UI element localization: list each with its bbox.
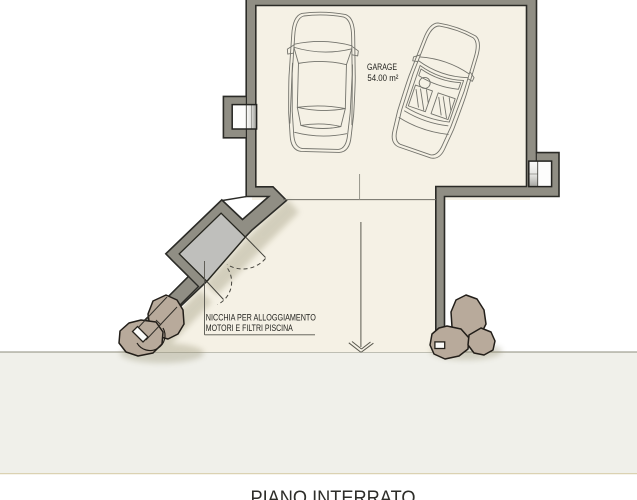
svg-text:NICCHIA PER ALLOGGIAMENTO: NICCHIA PER ALLOGGIAMENTO bbox=[206, 311, 316, 322]
svg-text:GARAGE: GARAGE bbox=[367, 61, 397, 72]
svg-text:MOTORI E FILTRI PISCINA: MOTORI E FILTRI PISCINA bbox=[206, 322, 294, 333]
svg-text:54.00 m²: 54.00 m² bbox=[367, 72, 398, 83]
svg-text:PIANO INTERRATO: PIANO INTERRATO bbox=[251, 487, 416, 500]
